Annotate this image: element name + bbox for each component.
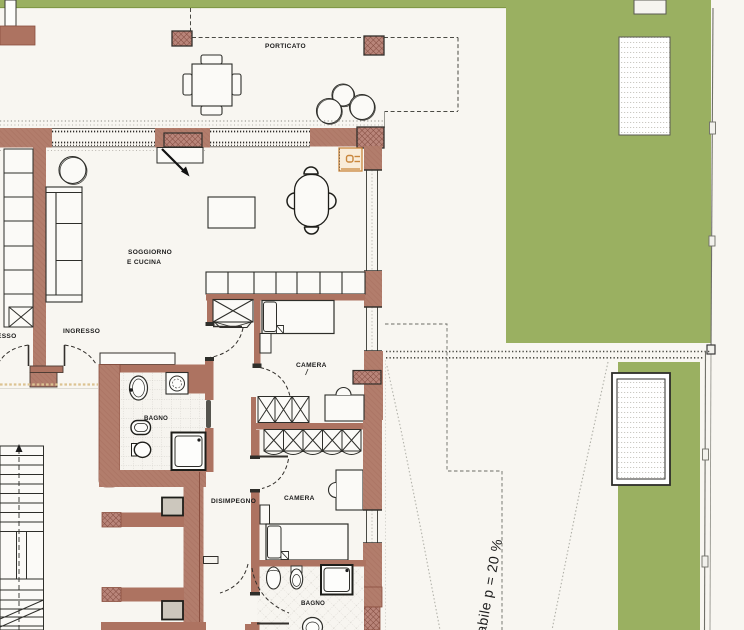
svg-text:ESSO: ESSO	[0, 333, 17, 340]
svg-text:DISIMPEGNO: DISIMPEGNO	[211, 498, 256, 505]
svg-text:CAMERA: CAMERA	[296, 362, 327, 369]
svg-text:PORTICATO: PORTICATO	[265, 43, 306, 50]
svg-text:SOGGIORNO: SOGGIORNO	[128, 249, 172, 256]
svg-text:INGRESSO: INGRESSO	[63, 328, 100, 335]
svg-text:E CUCINA: E CUCINA	[127, 259, 161, 266]
svg-text:BAGNO: BAGNO	[301, 600, 325, 607]
svg-text:CAMERA: CAMERA	[284, 495, 315, 502]
